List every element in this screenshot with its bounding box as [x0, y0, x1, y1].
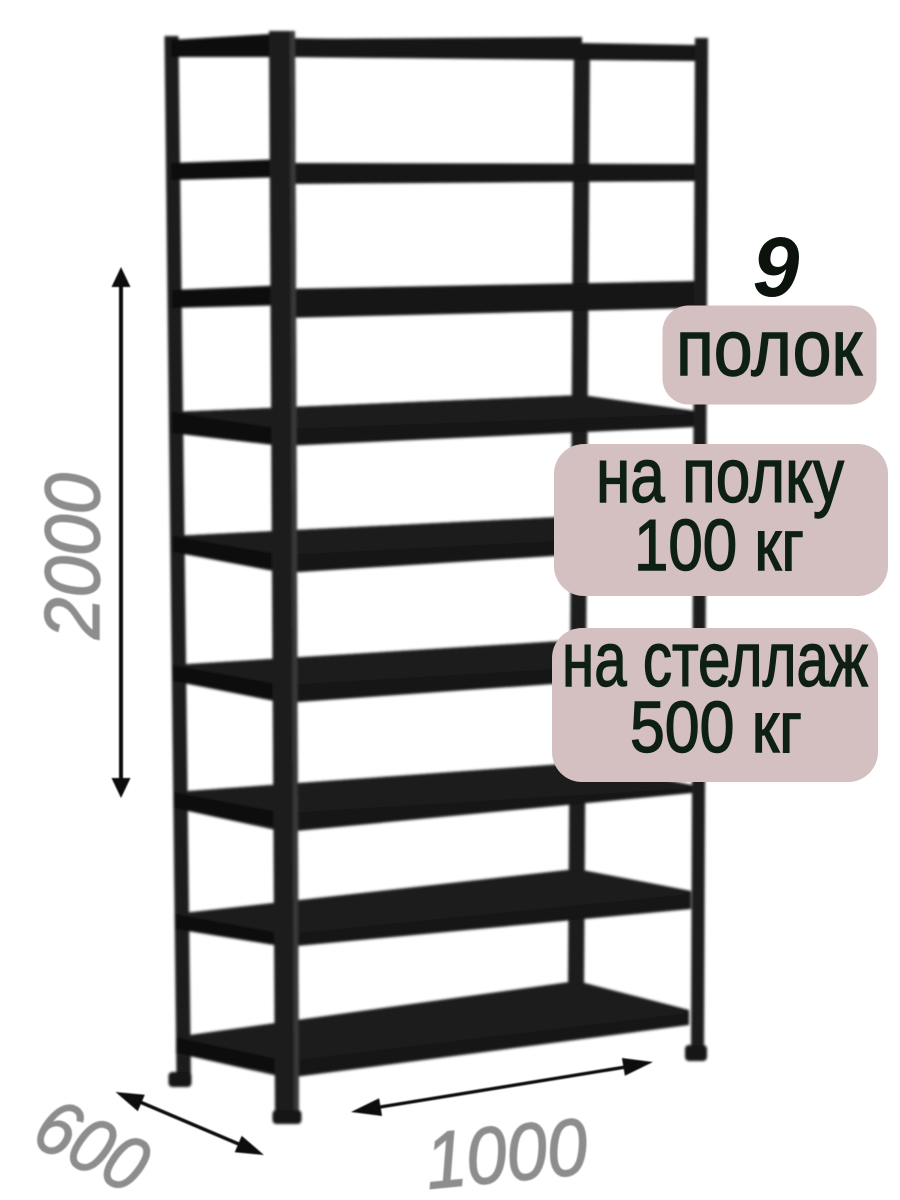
svg-text:9: 9 [753, 220, 800, 314]
svg-text:полок: полок [676, 303, 863, 392]
svg-text:500 кг: 500 кг [630, 688, 802, 768]
svg-text:100 кг: 100 кг [634, 506, 804, 586]
svg-text:2000: 2000 [28, 473, 116, 640]
svg-text:1000: 1000 [421, 1102, 591, 1200]
